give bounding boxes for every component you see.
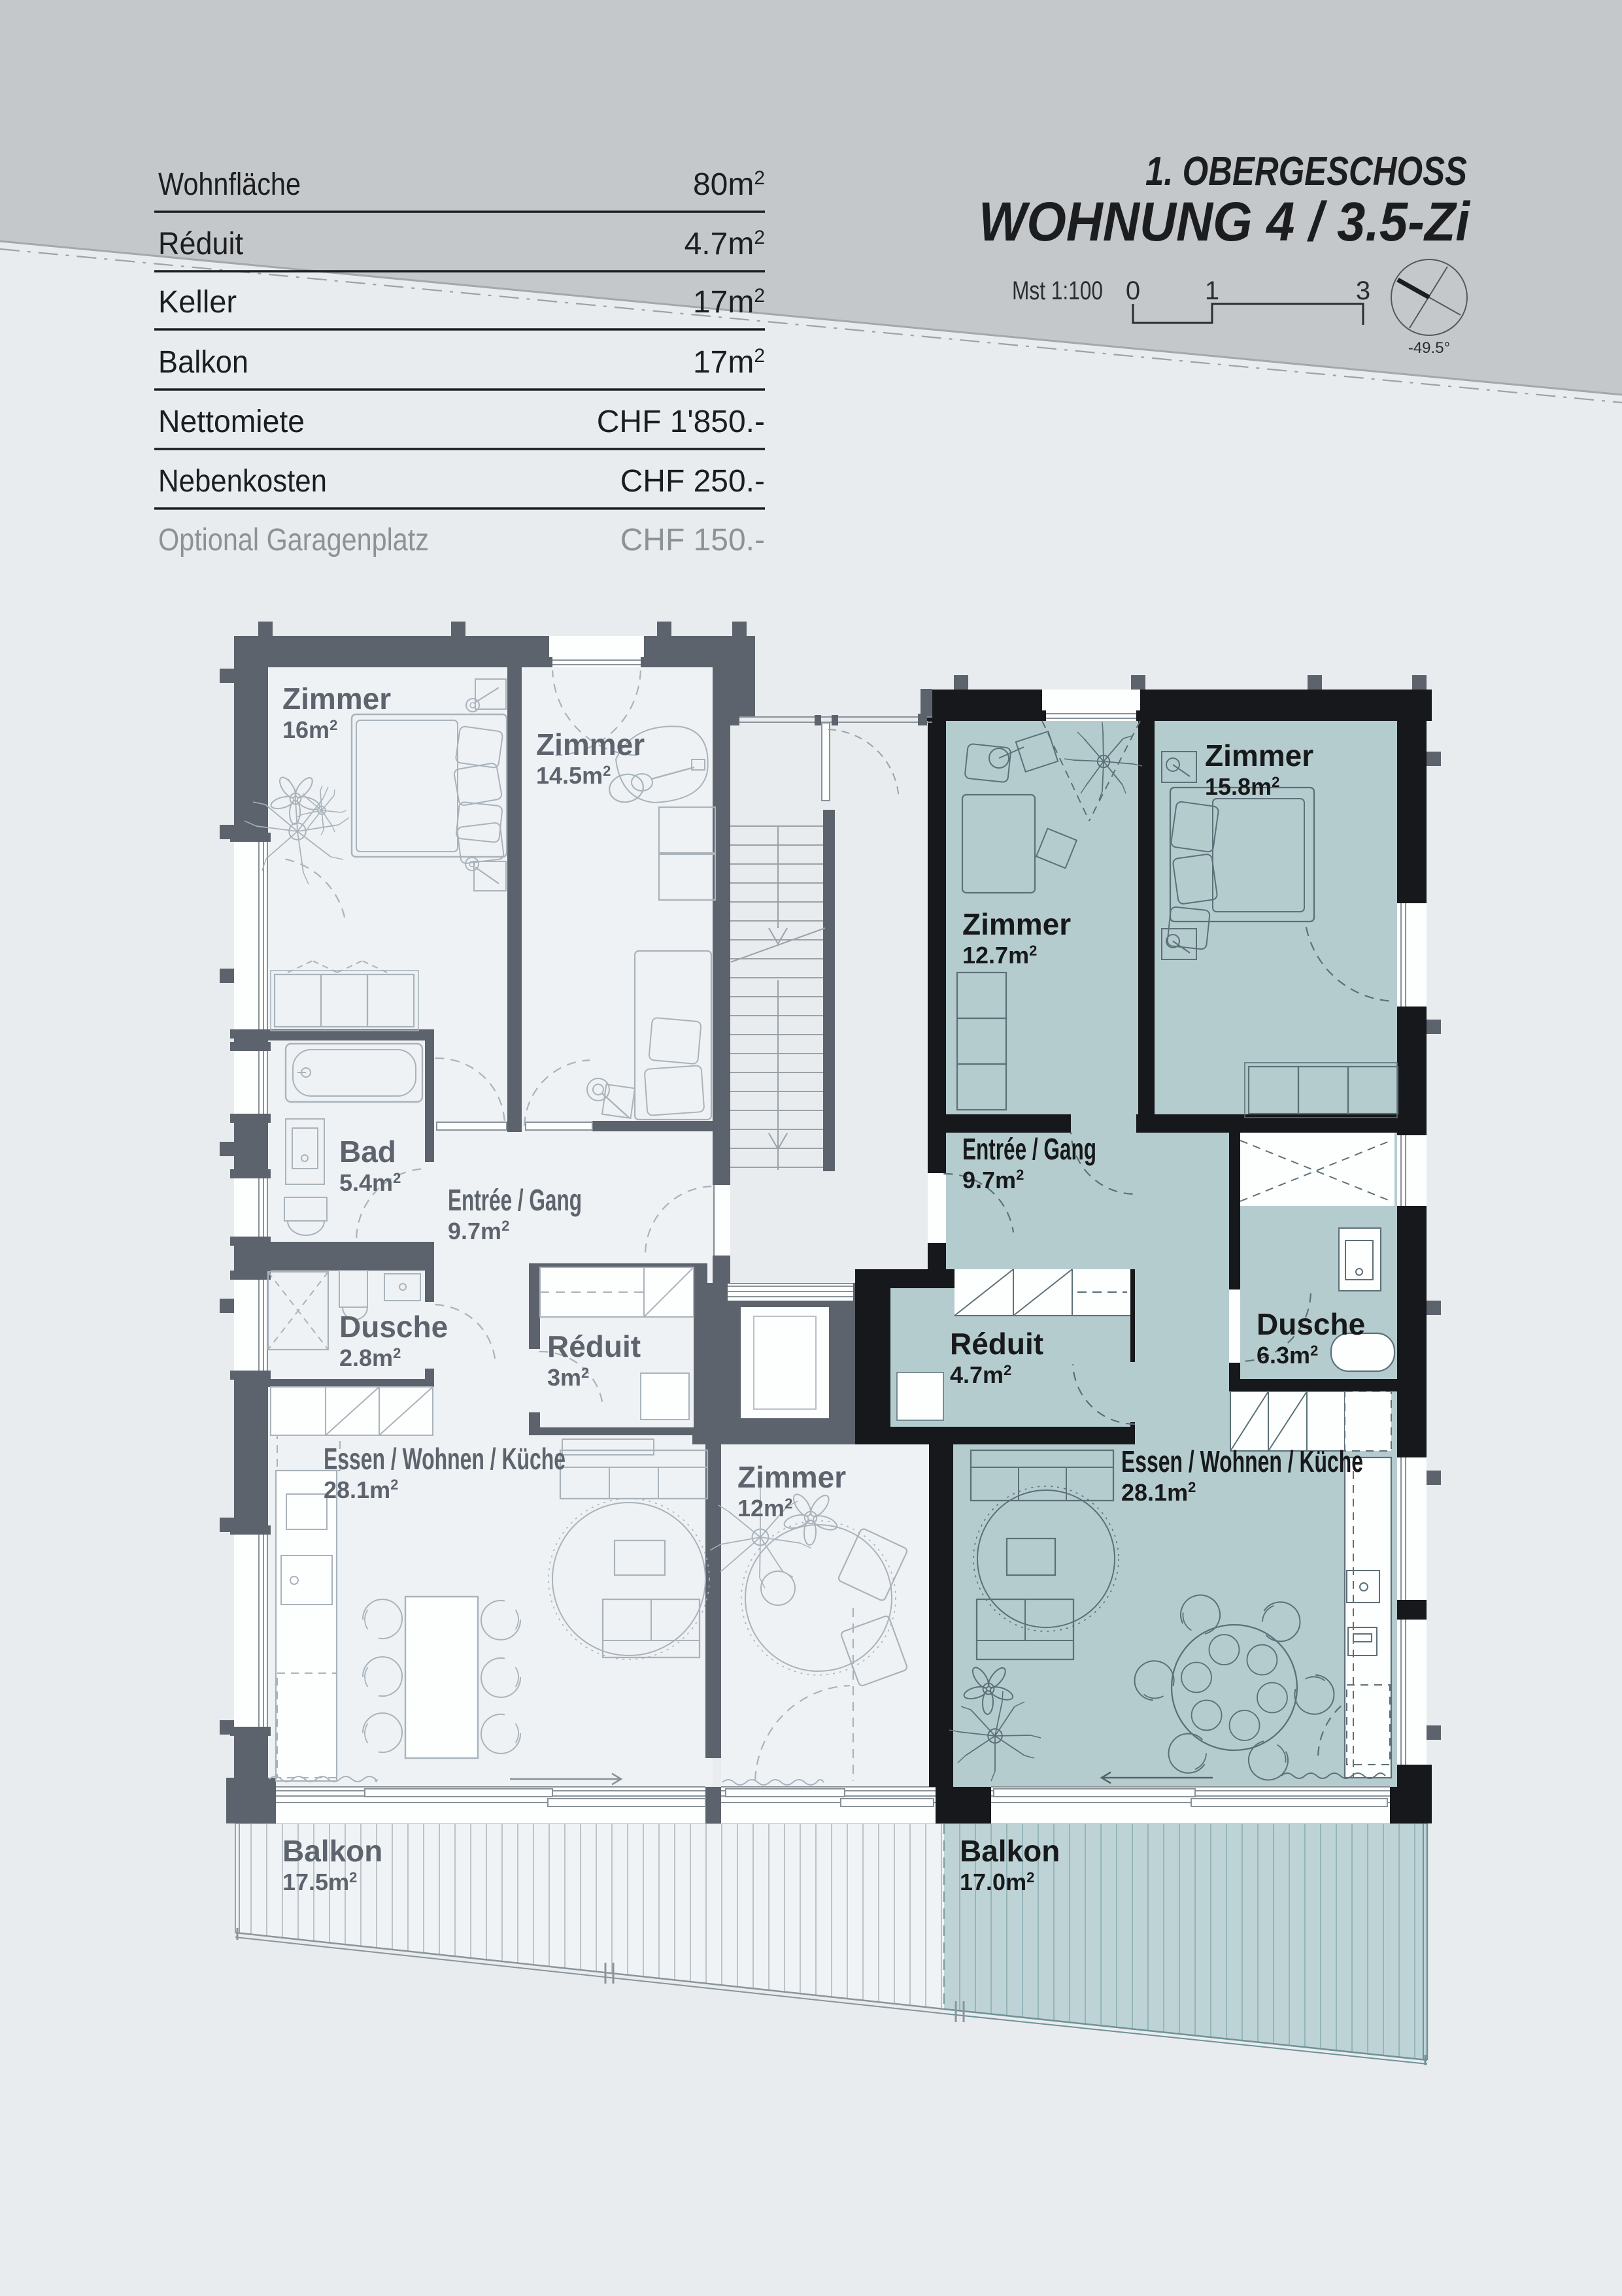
svg-text:Balkon: Balkon [960, 1834, 1060, 1868]
svg-text:Réduit: Réduit [547, 1329, 641, 1363]
svg-text:Réduit: Réduit [950, 1327, 1043, 1361]
svg-text:16m2: 16m2 [282, 716, 337, 743]
svg-text:Keller: Keller [158, 285, 237, 320]
svg-text:Réduit: Réduit [158, 227, 243, 261]
svg-text:Optional Garagenplatz: Optional Garagenplatz [158, 523, 429, 557]
svg-text:Zimmer: Zimmer [737, 1460, 846, 1494]
svg-text:17.0m2: 17.0m2 [960, 1869, 1034, 1895]
svg-text:Entrée / Gang: Entrée / Gang [962, 1132, 1096, 1166]
svg-text:WOHNUNG 4 / 3.5-Zi: WOHNUNG 4 / 3.5-Zi [979, 191, 1471, 252]
svg-text:Zimmer: Zimmer [1205, 739, 1313, 773]
svg-text:Balkon: Balkon [282, 1834, 382, 1868]
svg-text:Dusche: Dusche [339, 1310, 448, 1344]
svg-text:Essen / Wohnen / Küche: Essen / Wohnen / Küche [1121, 1444, 1363, 1478]
svg-text:CHF 250.-: CHF 250.- [620, 464, 765, 499]
svg-text:0: 0 [1126, 276, 1140, 305]
svg-text:28.1m2: 28.1m2 [1121, 1479, 1196, 1506]
svg-text:5.4m2: 5.4m2 [339, 1169, 401, 1196]
svg-text:Wohnfläche: Wohnfläche [158, 167, 301, 202]
svg-text:CHF 150.-: CHF 150.- [620, 523, 765, 557]
svg-text:Zimmer: Zimmer [282, 682, 391, 716]
svg-text:4.7m2: 4.7m2 [684, 227, 765, 261]
svg-text:2.8m2: 2.8m2 [339, 1344, 401, 1371]
svg-text:-49.5°: -49.5° [1408, 339, 1450, 357]
svg-text:Nettomiete: Nettomiete [158, 405, 305, 439]
svg-text:Nebenkosten: Nebenkosten [158, 464, 327, 499]
svg-text:Zimmer: Zimmer [536, 727, 645, 761]
svg-text:9.7m2: 9.7m2 [448, 1218, 509, 1244]
svg-text:12m2: 12m2 [737, 1495, 792, 1522]
svg-text:17.5m2: 17.5m2 [282, 1869, 357, 1895]
svg-text:Balkon: Balkon [158, 345, 248, 380]
svg-text:28.1m2: 28.1m2 [324, 1476, 398, 1503]
svg-text:Bad: Bad [339, 1135, 396, 1169]
svg-text:3: 3 [1356, 276, 1370, 305]
svg-text:6.3m2: 6.3m2 [1257, 1342, 1318, 1369]
svg-text:4.7m2: 4.7m2 [950, 1361, 1011, 1388]
svg-text:1: 1 [1205, 276, 1219, 305]
svg-text:Dusche: Dusche [1257, 1307, 1365, 1341]
svg-text:1. OBERGESCHOSS: 1. OBERGESCHOSS [1145, 149, 1467, 194]
svg-text:CHF 1'850.-: CHF 1'850.- [597, 405, 765, 439]
svg-text:12.7m2: 12.7m2 [962, 942, 1037, 969]
svg-text:Entrée / Gang: Entrée / Gang [448, 1183, 582, 1217]
svg-text:Mst 1:100: Mst 1:100 [1012, 276, 1103, 305]
svg-text:Zimmer: Zimmer [962, 907, 1071, 941]
svg-text:9.7m2: 9.7m2 [962, 1167, 1024, 1193]
svg-text:15.8m2: 15.8m2 [1205, 773, 1279, 800]
svg-text:14.5m2: 14.5m2 [536, 762, 611, 789]
svg-text:Essen / Wohnen / Küche: Essen / Wohnen / Küche [324, 1442, 566, 1476]
